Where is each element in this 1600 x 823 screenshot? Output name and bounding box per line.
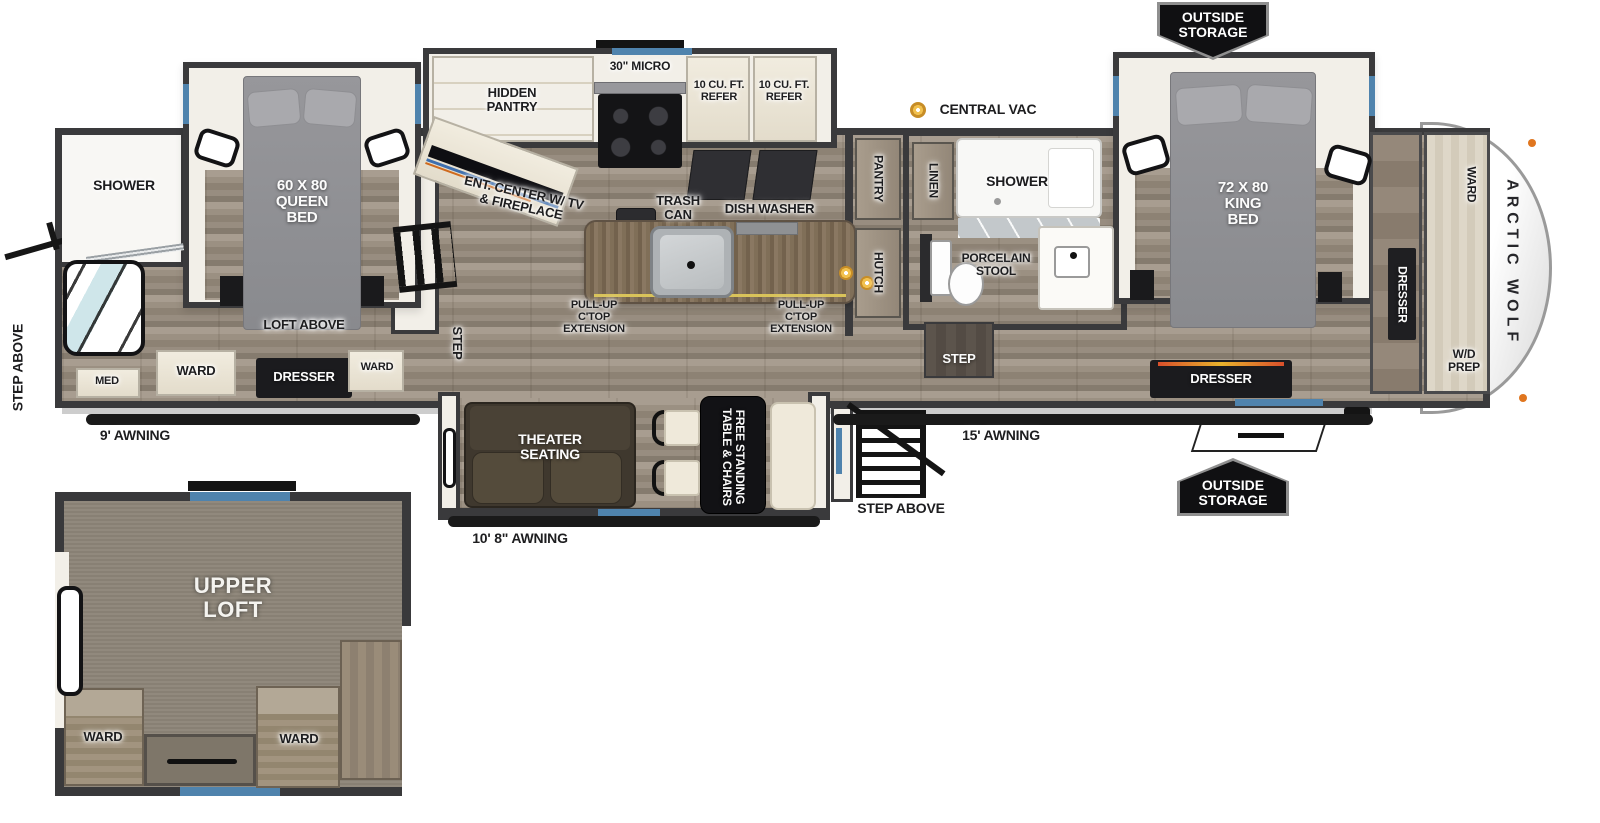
loft-ward-label: WARD [64, 730, 142, 744]
drain-icon [994, 198, 1001, 205]
dish-washer-label: DISH WASHER [712, 202, 827, 216]
king-bed-label: 72 X 80 KING BED [1172, 180, 1314, 229]
pillow [1175, 84, 1243, 127]
loft-roof-accent [188, 481, 296, 491]
body-accent [1235, 399, 1323, 406]
step-above-entry-label: STEP ABOVE [845, 501, 957, 516]
faucet-icon [687, 261, 695, 269]
dinette-chair-seat [664, 460, 700, 496]
bath-shower-label: SHOWER [962, 174, 1072, 189]
brand-label: ARCTIC WOLF [1503, 147, 1520, 379]
loft-side-panel [340, 640, 402, 780]
front-shower-label: SHOWER [64, 178, 184, 193]
med-label: MED [76, 376, 138, 388]
awning-rear-label: 9' AWNING [80, 428, 190, 443]
marker-light-icon [1519, 394, 1527, 402]
hidden-pantry-label: HIDDEN PANTRY [452, 86, 572, 114]
outside-storage-label: OUTSIDE STORAGE [1180, 461, 1286, 513]
loft-ladder-icon [393, 221, 458, 293]
dinette-chair-back [652, 460, 664, 496]
pullup-label: PULL-UP C'TOP EXTENSION [548, 300, 640, 336]
refrigerator-door [752, 150, 817, 200]
dinette-label: FREE STANDING TABLE & CHAIRS [720, 382, 746, 532]
marker-light-icon [1528, 139, 1536, 147]
slide-corner [1318, 272, 1342, 302]
pillow [247, 88, 302, 128]
queen-slide-accent [183, 84, 189, 124]
hutch-label: HUTCH [872, 243, 885, 301]
ward-label: WARD [1465, 150, 1478, 218]
king-slide-accent [1369, 76, 1375, 116]
awning-main-label: 15' AWNING [945, 428, 1057, 443]
linen-label: LINEN [927, 149, 940, 211]
dinette-chair-seat [664, 410, 700, 446]
ward-label: WARD [350, 362, 404, 374]
dresser-label: DRESSER [258, 370, 350, 384]
bath-vanity [1038, 226, 1114, 310]
living-slide-window [443, 428, 456, 488]
pillow [303, 88, 358, 128]
queen-slide-accent [415, 84, 421, 124]
trash-can-label: TRASH CAN [648, 194, 708, 222]
dresser-tall-label: DRESSER [1396, 249, 1409, 339]
awning-bar [86, 414, 420, 425]
kitchen-slide-accent [612, 48, 692, 55]
slide-corner [1130, 270, 1154, 300]
entry-step-box [924, 322, 994, 378]
central-vac-icon [910, 102, 926, 118]
pantry-label: PANTRY [872, 144, 885, 212]
range-hood [594, 82, 686, 94]
central-vac-label: CENTRAL VAC [932, 102, 1044, 117]
vac-inlet-icon [839, 266, 853, 280]
slide-corner [360, 276, 384, 306]
loft-cutout [402, 626, 420, 796]
wd-prep-label: W/D PREP [1432, 348, 1496, 374]
stair-accent [836, 428, 842, 474]
stool-label: PORCELAIN STOOL [950, 252, 1042, 278]
sink-icon [650, 226, 734, 298]
stove-icon [598, 94, 682, 168]
ward-label: WARD [158, 364, 234, 378]
outside-storage-badge: OUTSIDE STORAGE [1177, 458, 1289, 516]
king-slide-accent [1113, 76, 1119, 116]
baggage-door-handle [1238, 433, 1284, 438]
loft-window-accent [180, 787, 280, 796]
dishwasher-front [736, 222, 798, 235]
awning-slide-label: 10' 8" AWNING [460, 531, 580, 546]
awning-bar [448, 516, 820, 527]
awning-bar [833, 414, 1373, 425]
refer-label: 10 CU. FT. REFER [751, 80, 817, 104]
roof-accent [596, 40, 684, 48]
queen-bed-label: 60 X 80 QUEEN BED [244, 178, 360, 227]
dinette-chair-back [652, 410, 664, 446]
floorplan-canvas: OUTSIDE STORAGE OUTSIDE STORAGE CENTRAL … [0, 0, 1600, 823]
micro-label: 30" MICRO [592, 60, 688, 73]
outside-storage-label: OUTSIDE STORAGE [1160, 5, 1266, 57]
step-label: STEP [928, 352, 990, 366]
loft-above-label: LOFT ABOVE [244, 318, 364, 332]
refer-label: 10 CU. FT. REFER [686, 80, 752, 104]
pullup-label: PULL-UP C'TOP EXTENSION [755, 300, 847, 336]
front-bunk-window [63, 260, 145, 356]
loft-window [57, 586, 83, 696]
faucet-icon [1070, 252, 1077, 259]
slide-corner [220, 276, 244, 306]
step-above-left-label: STEP ABOVE [10, 312, 25, 424]
dresser-label: DRESSER [1152, 372, 1290, 386]
loft-stair-hatch [144, 734, 256, 786]
loft-ward-label: WARD [258, 732, 340, 746]
upper-loft-label: UPPER LOFT [158, 574, 308, 622]
theater-label: THEATER SEATING [505, 432, 595, 462]
pillow [1245, 84, 1313, 127]
step-label: STEP [450, 313, 464, 373]
dinette-bench [770, 402, 816, 510]
loft-window-accent [190, 492, 290, 501]
